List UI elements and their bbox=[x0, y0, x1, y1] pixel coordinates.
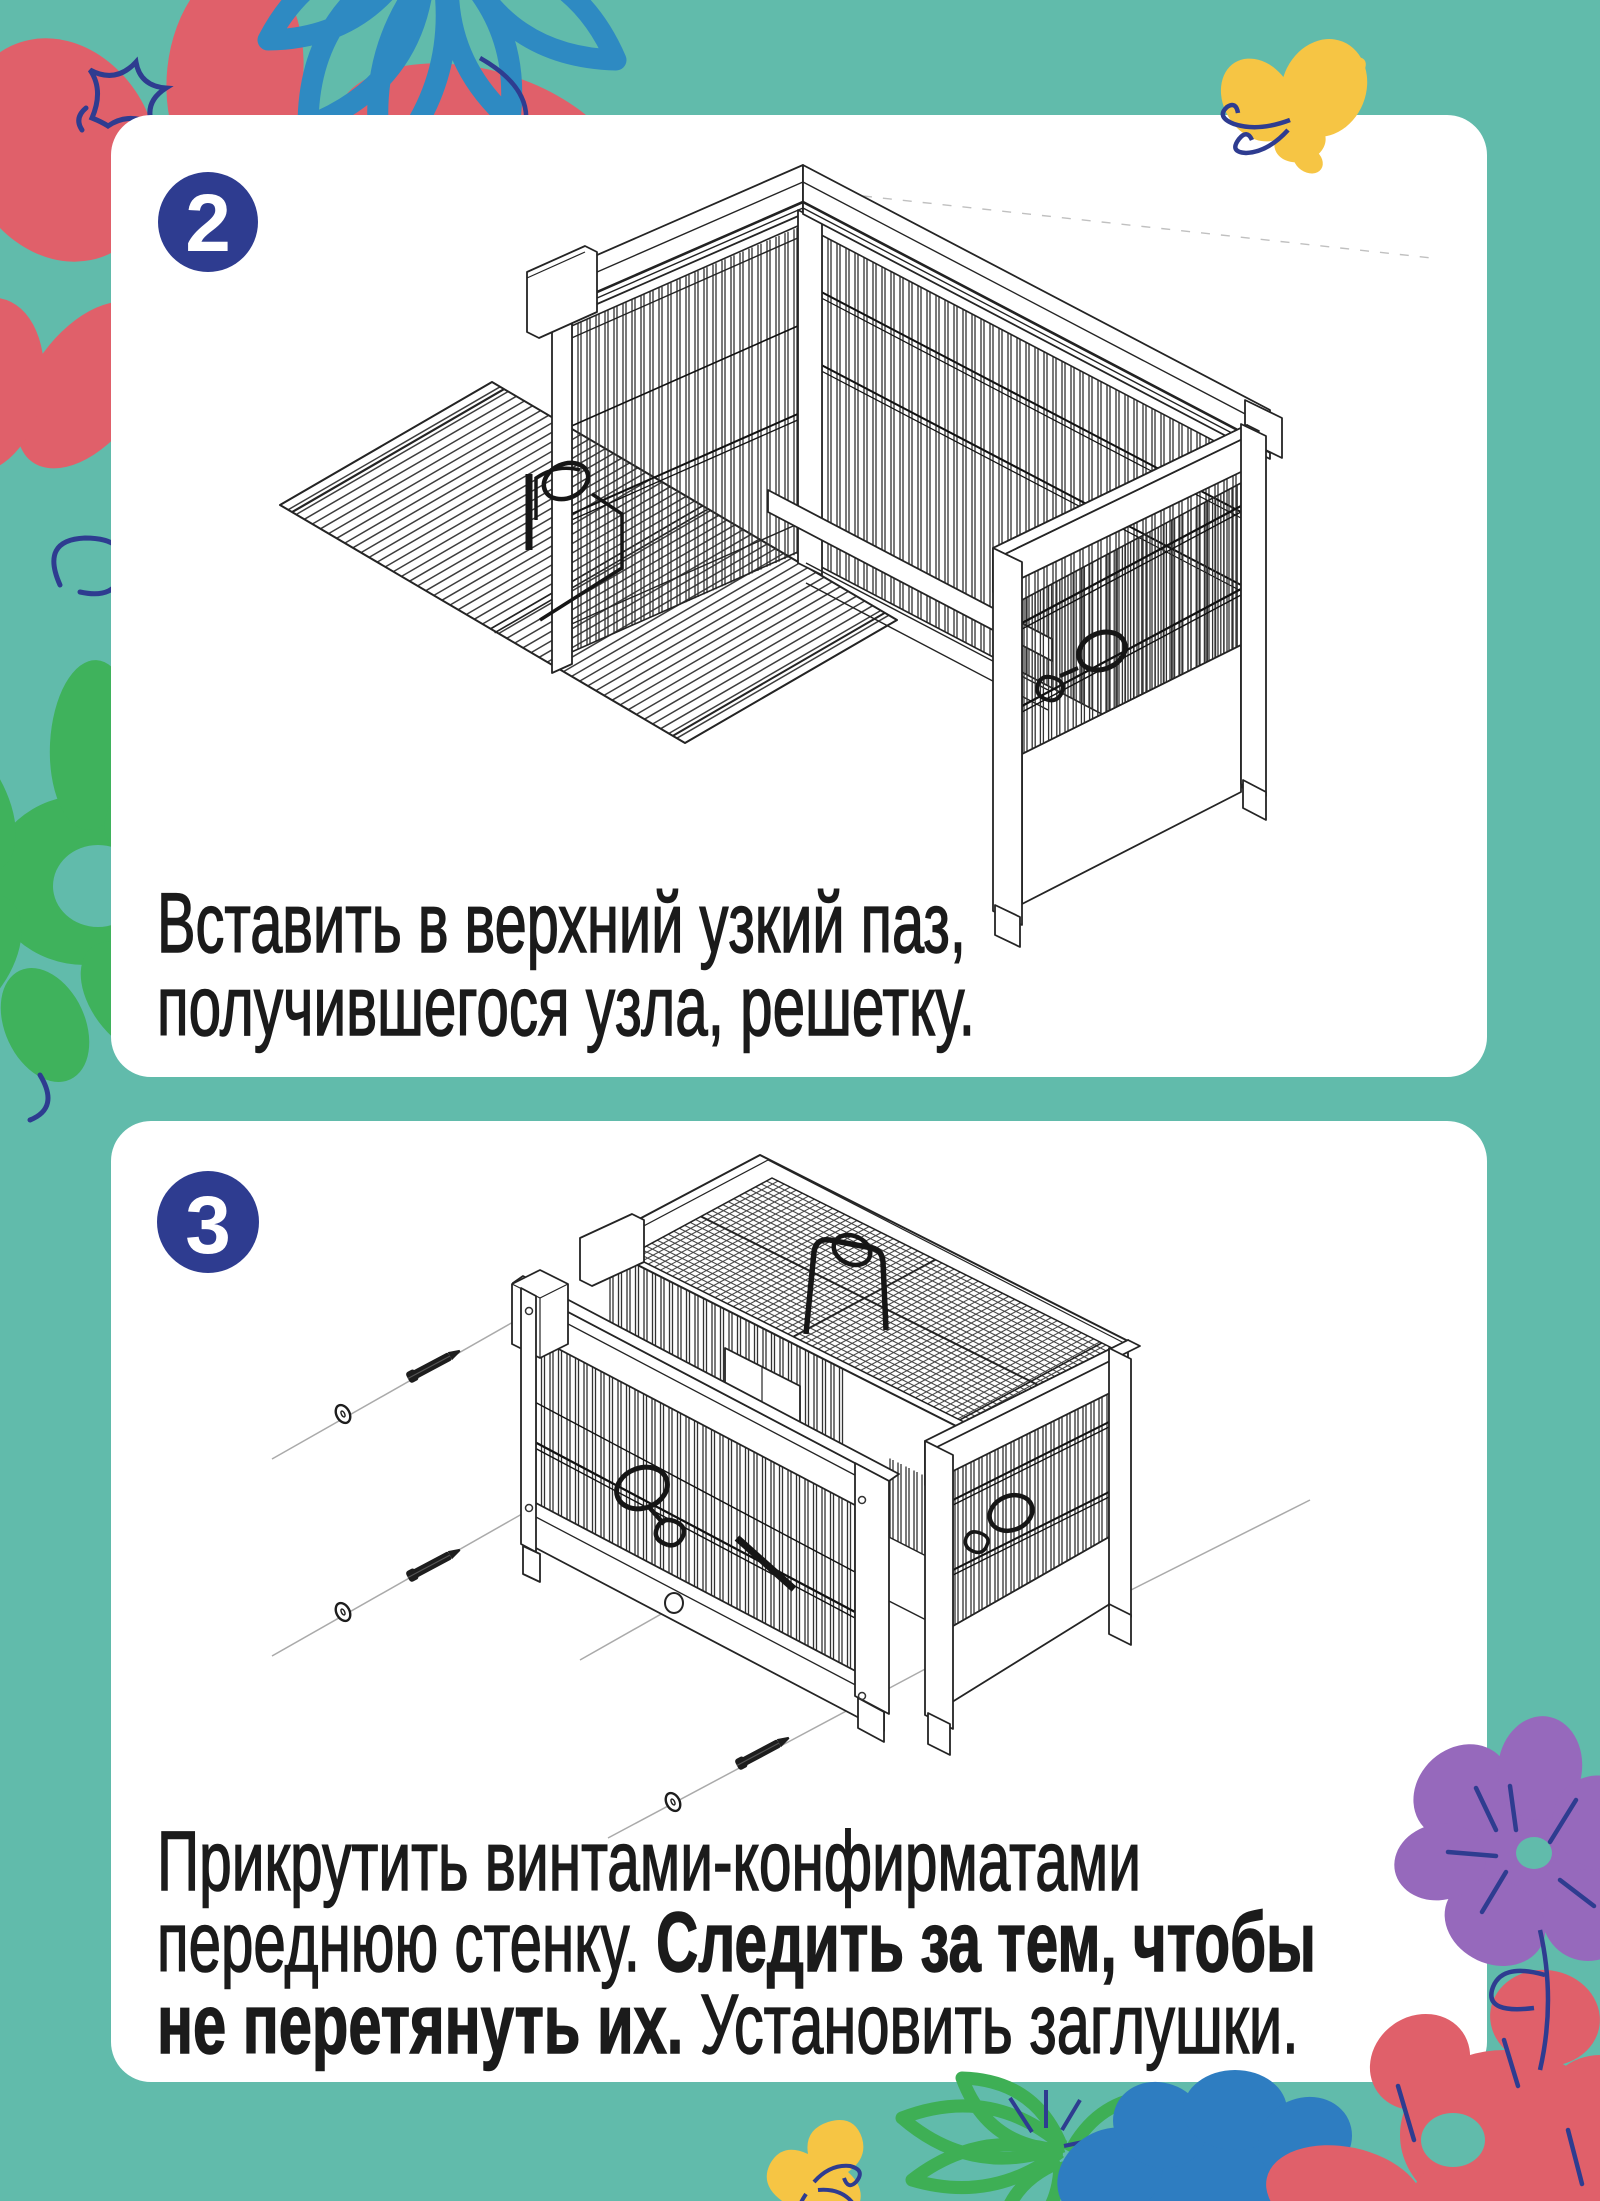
svg-text:переднюю стенку. Следить за те: переднюю стенку. Следить за тем, чтобы bbox=[157, 1897, 1316, 1990]
svg-text:3: 3 bbox=[185, 1180, 231, 1271]
svg-text:2: 2 bbox=[185, 178, 231, 269]
svg-text:получившегося узла, решетку.: получившегося узла, решетку. bbox=[157, 961, 975, 1054]
svg-text:не перетянуть их. Установить з: не перетянуть их. Установить заглушки. bbox=[157, 1978, 1299, 2071]
svg-text:Прикрутить винтами-конфирматам: Прикрутить винтами-конфирматами bbox=[157, 1815, 1141, 1909]
svg-text:Вставить в верхний узкий паз,: Вставить в верхний узкий паз, bbox=[157, 877, 966, 970]
